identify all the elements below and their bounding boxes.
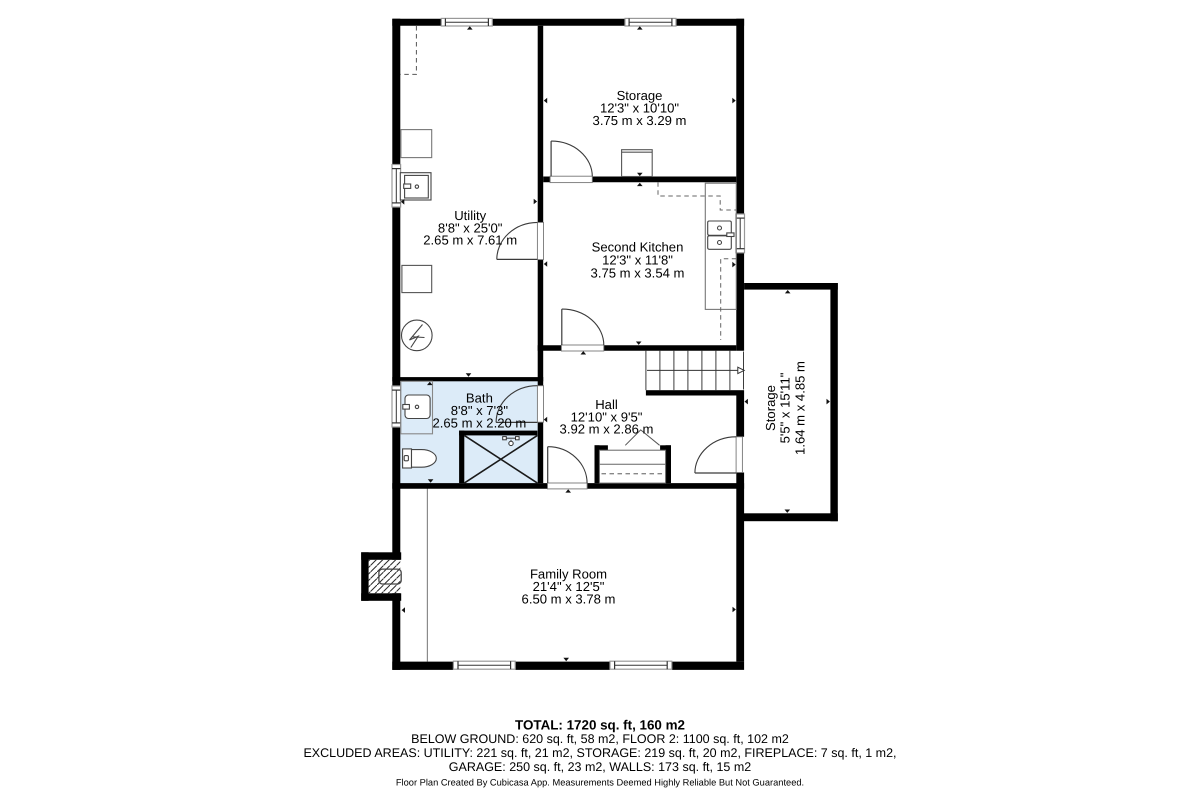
svg-text:GARAGE: 250 sq. ft, 23 m2, WAL: GARAGE: 250 sq. ft, 23 m2, WALLS: 173 sq… xyxy=(449,760,752,774)
svg-text:3.92 m x 2.86 m: 3.92 m x 2.86 m xyxy=(560,422,654,437)
svg-text:2.65 m x 7.61 m: 2.65 m x 7.61 m xyxy=(423,233,517,248)
svg-text:3.75 m x 3.54 m: 3.75 m x 3.54 m xyxy=(591,266,685,281)
svg-text:TOTAL: 1720 sq. ft, 160 m2: TOTAL: 1720 sq. ft, 160 m2 xyxy=(515,718,685,733)
svg-text:1.64 m x 4.85 m: 1.64 m x 4.85 m xyxy=(793,361,808,455)
svg-text:Floor Plan Created By Cubicasa: Floor Plan Created By Cubicasa App. Meas… xyxy=(396,778,804,788)
svg-text:BELOW GROUND: 620 sq. ft, 58 m: BELOW GROUND: 620 sq. ft, 58 m2, FLOOR 2… xyxy=(411,732,789,746)
svg-text:3.75 m x 3.29 m: 3.75 m x 3.29 m xyxy=(593,113,687,128)
svg-text:2.65 m x 2.20 m: 2.65 m x 2.20 m xyxy=(432,415,526,430)
svg-text:5'5" x 15'11": 5'5" x 15'11" xyxy=(778,372,793,443)
svg-text:6.50 m x 3.78 m: 6.50 m x 3.78 m xyxy=(522,592,616,607)
svg-text:Storage: Storage xyxy=(763,385,778,431)
svg-text:EXCLUDED AREAS: UTILITY: 221 s: EXCLUDED AREAS: UTILITY: 221 sq. ft, 21 … xyxy=(303,746,896,760)
